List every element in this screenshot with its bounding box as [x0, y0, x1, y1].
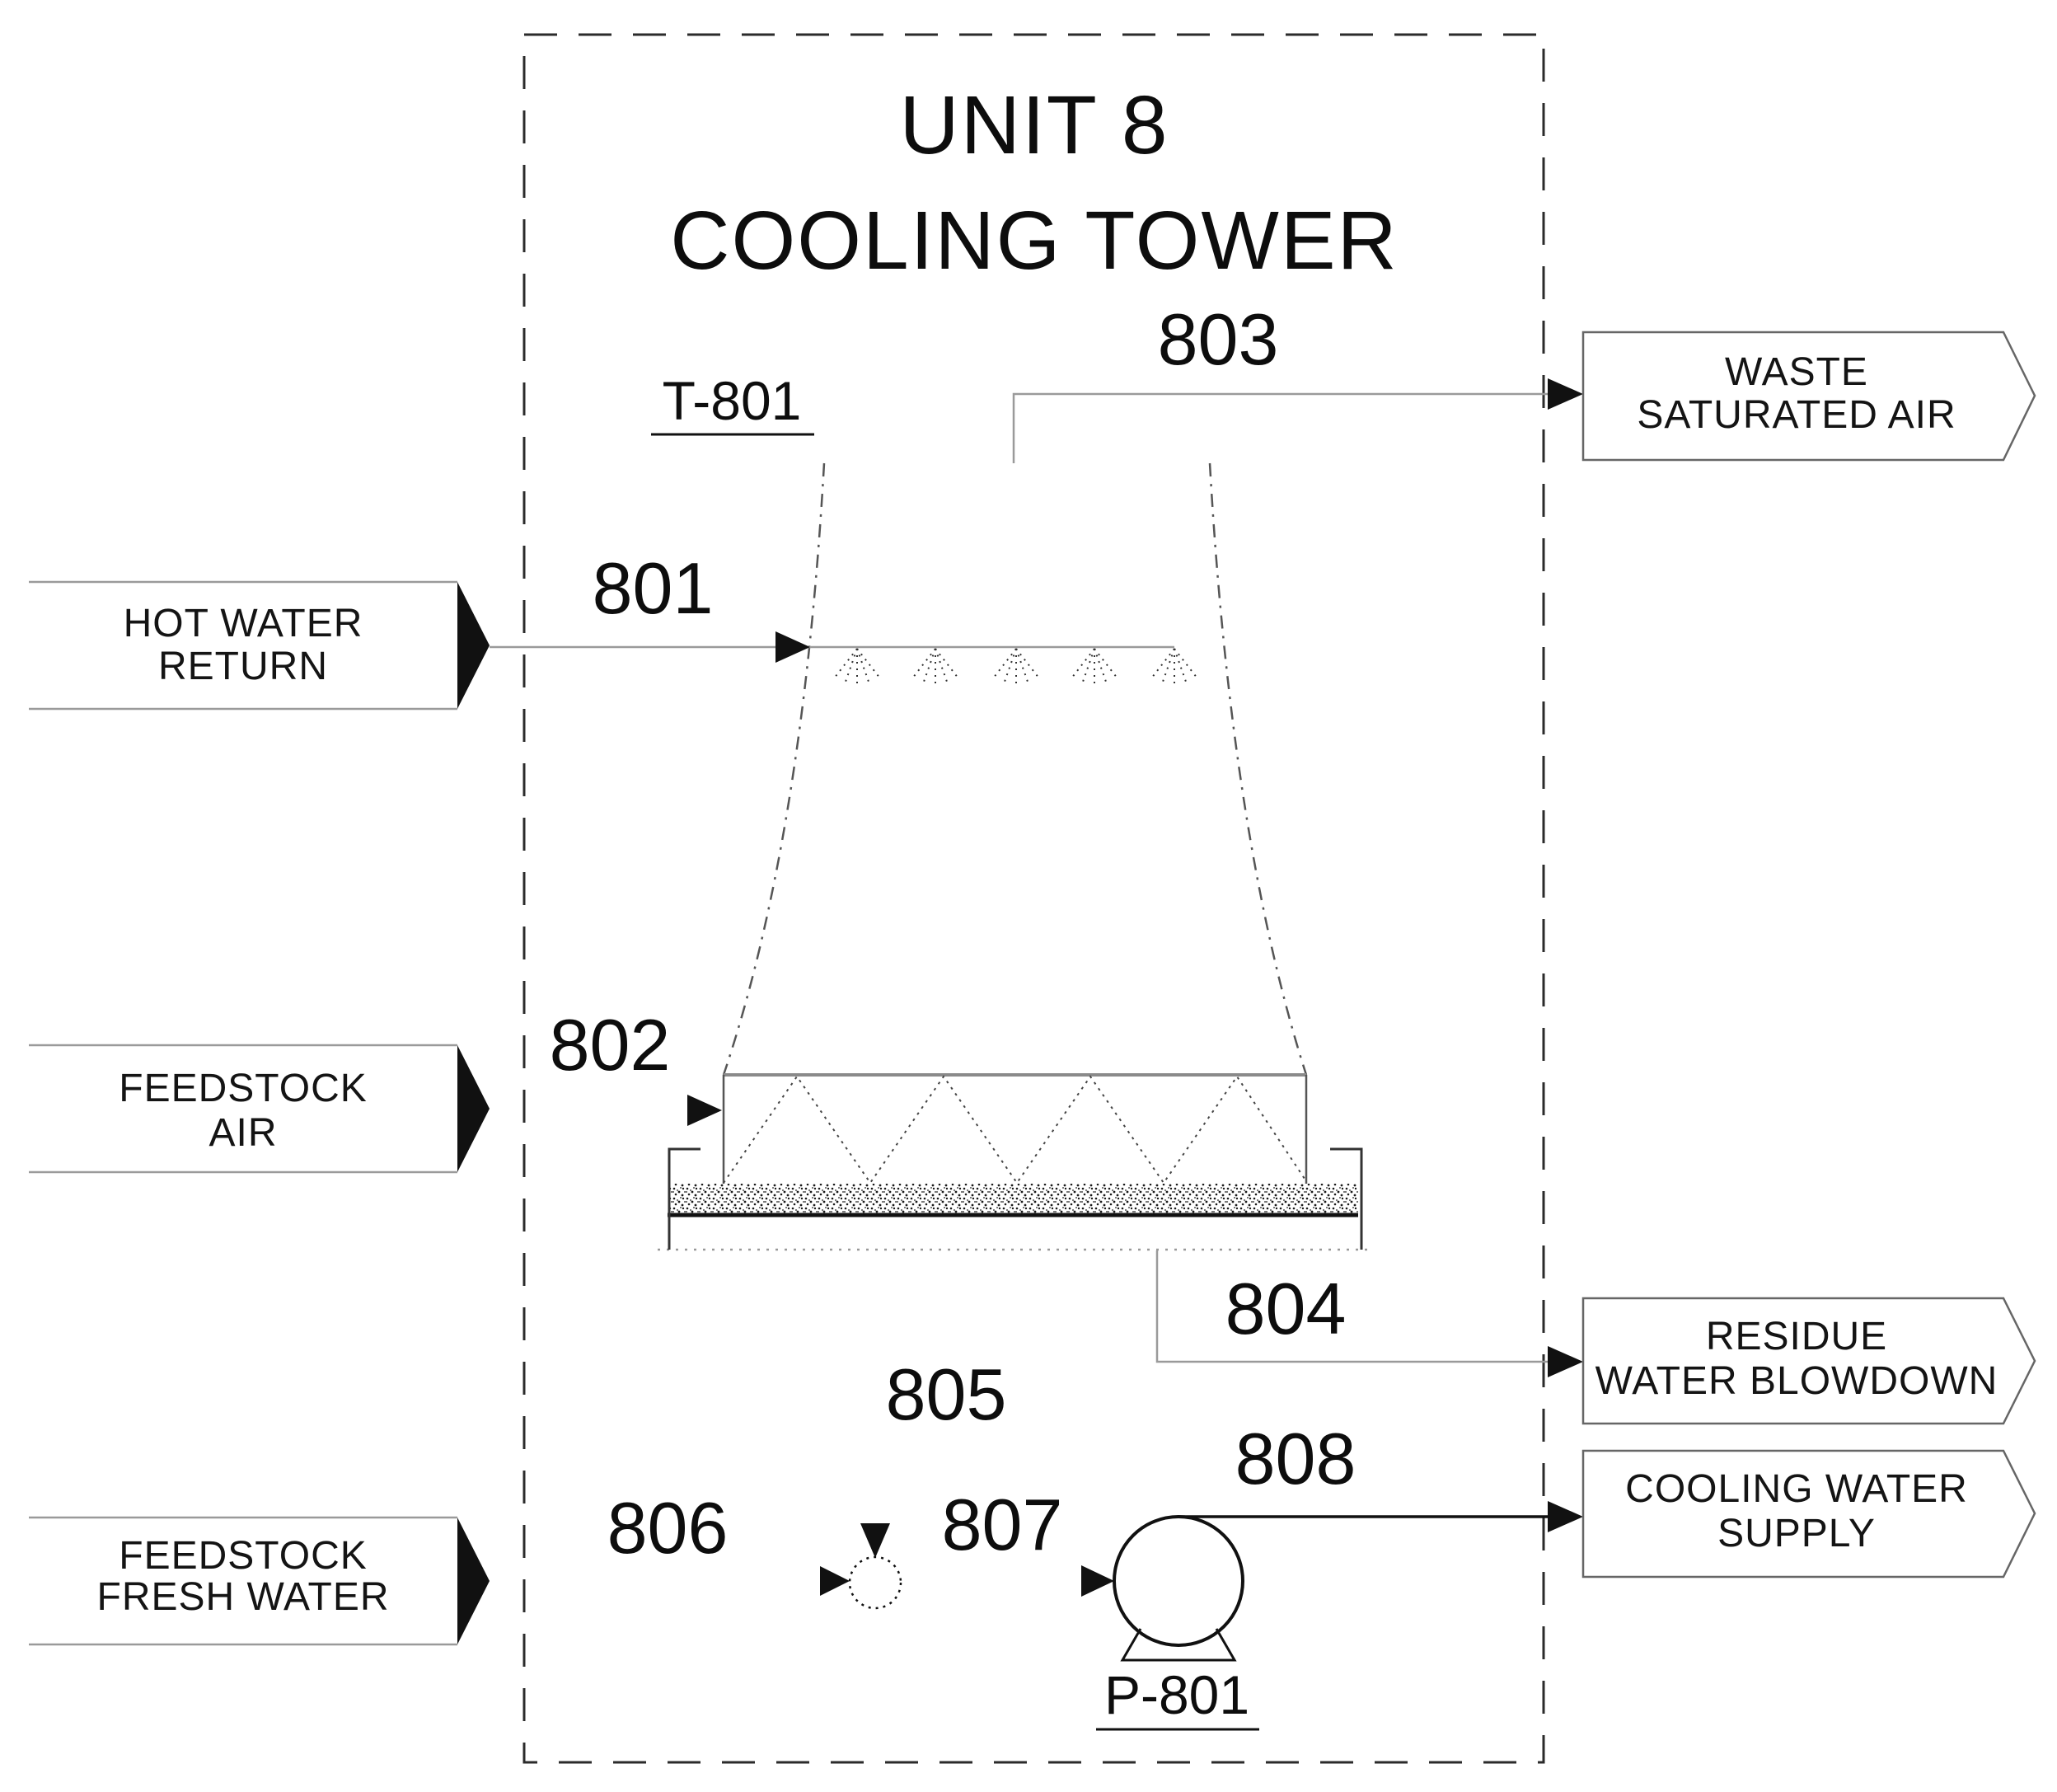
line-804 [1157, 1250, 1548, 1362]
spray-nozzles [834, 649, 1197, 684]
arrowhead-801 [775, 631, 810, 663]
output-label-waste-air-line1: WASTE [1725, 353, 1868, 392]
stream-label-802: 802 [550, 1009, 671, 1081]
arrowhead-803 [1548, 378, 1583, 410]
pump-tag: P-801 [1104, 1668, 1249, 1722]
input-flag-arrow-icon [457, 1518, 490, 1644]
stream-label-805: 805 [886, 1358, 1007, 1431]
output-label-cooling-supply-line2: SUPPLY [1717, 1514, 1876, 1554]
stream-label-801: 801 [593, 552, 714, 625]
arrowhead-808 [1548, 1501, 1583, 1532]
input-flag-arrow-icon [457, 1045, 490, 1172]
tower-tag: T-801 [663, 373, 802, 428]
spray-nozzle-icon [993, 649, 1039, 684]
input-label-feedstock-air-line2: AIR [209, 1114, 277, 1153]
arrowhead-807 [1081, 1565, 1114, 1597]
output-label-cooling-supply-line1: COOLING WATER [1625, 1470, 1968, 1509]
tower-right-wall [1210, 463, 1306, 1075]
input-label-fresh-water-line1: FEEDSTOCK [119, 1536, 368, 1576]
fill-truss-zigzag [724, 1077, 1306, 1183]
spray-nozzle-icon [1151, 649, 1197, 684]
input-label-hot-water-line2: RETURN [158, 647, 328, 687]
stream-label-807: 807 [942, 1489, 1063, 1561]
stream-label-803: 803 [1158, 303, 1279, 376]
pump-icon [1114, 1517, 1243, 1645]
stream-label-806: 806 [607, 1492, 729, 1564]
output-label-blowdown-line1: RESIDUE [1706, 1317, 1887, 1357]
arrowhead-805 [820, 1566, 850, 1596]
line-803 [1014, 394, 1548, 463]
input-flag-arrow-icon [457, 582, 490, 709]
makeup-valve-icon [850, 1557, 901, 1608]
unit-title-line1: UNIT 8 [900, 84, 1169, 167]
input-label-fresh-water-line2: FRESH WATER [97, 1578, 390, 1617]
basin-gravel [669, 1184, 1358, 1214]
arrowhead-802 [687, 1095, 722, 1126]
input-label-feedstock-air-line1: FEEDSTOCK [119, 1069, 368, 1109]
spray-nozzle-icon [834, 649, 880, 684]
input-label-hot-water-line1: HOT WATER [124, 604, 363, 644]
stream-label-808: 808 [1235, 1423, 1356, 1495]
arrowhead-804 [1548, 1346, 1583, 1377]
output-label-waste-air-line2: SATURATED AIR [1637, 396, 1956, 435]
spray-nozzle-icon [912, 649, 958, 684]
tower-left-wall [724, 463, 824, 1075]
valve-inlet-arrowhead [860, 1523, 890, 1558]
stream-label-804: 804 [1225, 1273, 1347, 1345]
process-flow-diagram: UNIT 8 COOLING TOWER T-801 P-801 801 802… [0, 0, 2057, 1792]
output-label-blowdown-line2: WATER BLOWDOWN [1595, 1362, 1998, 1401]
spray-nozzle-icon [1071, 649, 1118, 684]
unit-title-line2: COOLING TOWER [670, 199, 1399, 282]
